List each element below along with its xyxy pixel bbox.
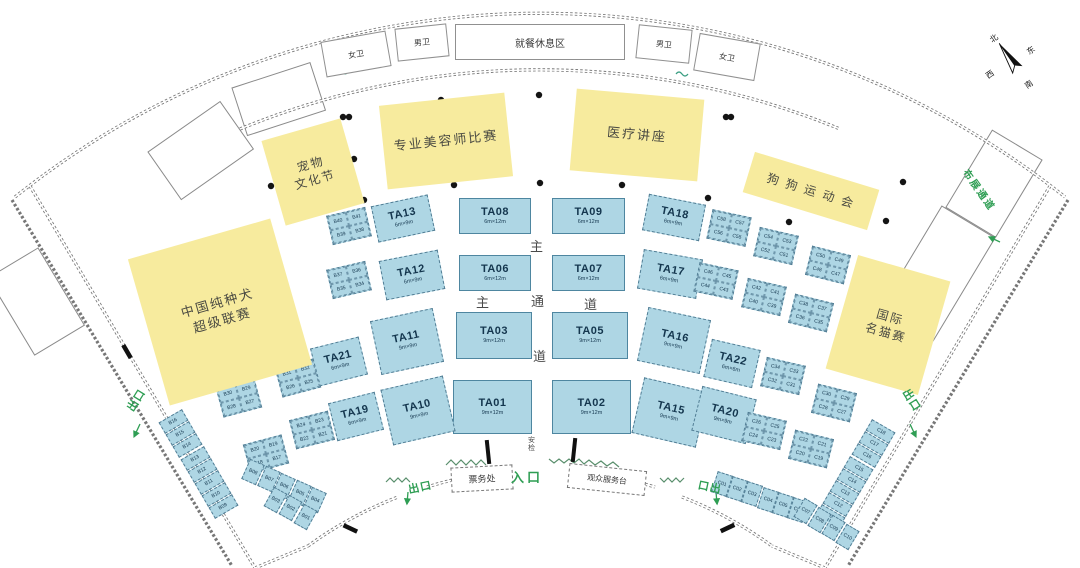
- exit-label: 出口: [123, 386, 149, 415]
- booth-size-label: 6m×12m: [484, 277, 506, 283]
- booth-size-label: 6m×9m: [395, 220, 414, 229]
- booth-cell-label: B01: [300, 512, 311, 522]
- booth-cell-label: C12: [832, 500, 843, 510]
- booth-cluster: C42C41C40C39: [741, 278, 787, 316]
- booth-cluster: C22C21C20C19: [788, 430, 834, 469]
- booth-cell-C43: C43: [713, 281, 734, 299]
- booth-cell-label: B16: [168, 417, 179, 427]
- booth-TA08: TA086m×12m: [459, 198, 531, 234]
- booth-size-label: 6m×12m: [578, 277, 600, 283]
- booth-cell-label: C05: [778, 501, 789, 510]
- main-corridor-label: 通: [531, 291, 544, 310]
- booth-cell-label: B14: [183, 441, 194, 451]
- dining-area-label: 就餐休息区: [515, 35, 565, 50]
- booth-TA07: TA076m×12m: [552, 255, 625, 291]
- booth-cell-label: B08: [248, 467, 259, 476]
- booth-cell-C31: C31: [780, 376, 802, 394]
- booth-TA13: TA136m×9m: [371, 194, 435, 242]
- booth-cell-label: C16: [861, 451, 872, 461]
- booth-cell-label: B03: [270, 495, 281, 505]
- event-zone-label: 狗 狗 运 动 会: [765, 170, 857, 212]
- booth-cluster: C30C29C28C27: [811, 384, 857, 423]
- booth-TA02: TA029m×12m: [552, 380, 631, 434]
- ticket-office-label: 票务处: [468, 471, 496, 485]
- restroom-men-right: 男卫: [635, 24, 692, 63]
- booth-size-label: 9m×12m: [579, 339, 601, 345]
- booth-cluster: C46C45C44C43: [693, 262, 738, 300]
- booth-cluster: B40B41B39B38: [326, 207, 372, 245]
- booth-cell-B38: B38: [349, 222, 371, 240]
- restroom-women-left-label: 女卫: [347, 47, 365, 61]
- compass-west-label: 西: [984, 68, 997, 82]
- restroom-women-right-label: 女卫: [718, 50, 736, 64]
- booth-size-label: 9m×12m: [581, 411, 603, 417]
- visitor-service-desk: 观众服务台: [567, 463, 647, 496]
- setup-passage-label: 布展通道: [960, 166, 1000, 214]
- event-zone-medical-lecture: 医疗讲座: [570, 89, 705, 182]
- main-corridor-label: 道: [584, 294, 597, 313]
- booth-cell-label: C13: [839, 488, 850, 498]
- booth-id-label: TA02: [577, 398, 605, 409]
- restroom-men-left-label: 男卫: [413, 36, 430, 49]
- booth-TA12: TA126m×9m: [379, 250, 446, 301]
- entrance-label: 入口: [511, 467, 543, 486]
- booth-cell-label: B04: [310, 495, 321, 504]
- booth-cell-C39: C39: [761, 297, 783, 315]
- booth-TA06: TA066m×12m: [459, 255, 531, 291]
- booth-size-label: 9m×9m: [663, 342, 682, 351]
- booth-cell-label: B13: [190, 453, 201, 463]
- booth-TA01: TA019m×12m: [453, 380, 532, 434]
- event-zone-groomer-competition: 专业美容师比赛: [379, 93, 513, 190]
- booth-cell-label: C02: [732, 485, 743, 494]
- main-corridor-label: 主: [530, 236, 543, 255]
- booth-cell-label: B11: [204, 478, 214, 487]
- booth-size-label: 6m×9m: [663, 219, 682, 228]
- booth-id-label: TA01: [478, 398, 506, 409]
- booth-layer: TA086m×12mTA096m×12mTA066m×12mTA076m×12m…: [0, 0, 1080, 568]
- booth-size-label: 9m×9m: [399, 343, 418, 352]
- compass-south-label: 南: [1023, 78, 1036, 92]
- booth-size-label: 6m×12m: [578, 220, 600, 226]
- booth-cell-label: B15: [175, 429, 186, 439]
- event-zone-dog-sports-meet: 狗 狗 运 动 会: [743, 152, 880, 230]
- booth-cell-label: C04: [762, 495, 773, 504]
- booth-TA19: TA196m×9m: [328, 392, 384, 441]
- booth-TA22: TA226m×6m: [703, 339, 760, 388]
- booth-cluster: C58C57C56C55: [706, 209, 751, 247]
- main-corridor-label: 道: [533, 346, 546, 365]
- booth-id-label: TA06: [481, 264, 509, 275]
- booth-cluster: C38C37C36C35: [788, 294, 834, 333]
- booth-size-label: 6m×12m: [484, 220, 506, 226]
- booth-TA05: TA059m×12m: [552, 312, 628, 359]
- booth-id-label: TA03: [480, 326, 508, 337]
- booth-cell-label: B07: [263, 474, 274, 483]
- booth-cell-label: C07: [800, 506, 811, 516]
- booth-cell-label: B10: [211, 490, 222, 500]
- booth-id-label: TA09: [574, 207, 602, 218]
- main-corridor-label: 主: [476, 292, 489, 311]
- booth-TA09: TA096m×12m: [552, 198, 625, 234]
- booth-size-label: 6m×9m: [404, 277, 423, 286]
- booth-cluster: B24B23B22B21: [289, 411, 335, 450]
- booth-cell-label: C17: [868, 439, 879, 449]
- booth-cell-C23: C23: [761, 431, 783, 449]
- booth-id-label: TA07: [574, 264, 602, 275]
- booth-cell-B34: B34: [349, 276, 371, 294]
- ticket-office: 票务处: [450, 464, 513, 492]
- booth-cell-label: B05: [295, 488, 306, 497]
- booth-TA03: TA039m×12m: [456, 312, 532, 359]
- booth-TA18: TA186m×9m: [642, 194, 706, 241]
- booth-cell-C51: C51: [773, 246, 795, 264]
- booth-cell-B21: B21: [312, 425, 334, 443]
- exit-label: 出口: [407, 477, 434, 498]
- booth-TA11: TA119m×9m: [370, 308, 444, 375]
- restroom-women-right: 女卫: [693, 33, 761, 81]
- booth-cell-label: C08: [814, 515, 825, 525]
- booth-cell-label: C14: [846, 475, 857, 485]
- booth-TA10: TA109m×9m: [380, 376, 455, 446]
- booth-cluster: C54C53C52C51: [753, 227, 799, 265]
- restroom-men-left: 男卫: [394, 23, 449, 61]
- booth-TA16: TA169m×9m: [637, 307, 711, 374]
- booth-cluster: C50C49C48C47: [805, 246, 851, 285]
- booth-cell-label: C18: [875, 427, 886, 437]
- compass-east-label: 东: [1025, 44, 1038, 58]
- booth-id-label: TA05: [576, 326, 604, 337]
- booth-cell-C55: C55: [726, 228, 747, 246]
- security-check-label: 安检: [528, 437, 537, 452]
- booth-size-label: 9m×12m: [483, 339, 505, 345]
- booth-cluster: C26C25C24C23: [741, 412, 787, 450]
- restroom-women-left: 女卫: [320, 31, 391, 78]
- booth-cell-label: C15: [853, 463, 864, 473]
- booth-cell-label: B09: [219, 502, 230, 512]
- booth-cell-label: C03: [747, 490, 758, 499]
- booth-cell-label: C09: [828, 523, 839, 533]
- booth-size-label: 9m×12m: [482, 411, 504, 417]
- exhibition-floor-plan: TA086m×12mTA096m×12mTA066m×12mTA076m×12m…: [0, 0, 1080, 568]
- booth-size-label: 9m×9m: [410, 412, 429, 422]
- booth-cell-label: B06: [279, 481, 290, 490]
- event-zone-label: 专业美容师比赛: [393, 127, 499, 155]
- booth-cell-label: B02: [285, 504, 296, 514]
- booth-cell-label: C10: [842, 532, 853, 542]
- compass-north-label: 北: [988, 32, 1001, 46]
- dining-area: 就餐休息区: [455, 24, 625, 60]
- booth-cluster: C34C33C32C31: [760, 357, 806, 395]
- event-zone-label: 医疗讲座: [606, 124, 667, 147]
- visitor-service-desk-label: 观众服务台: [587, 472, 628, 487]
- booth-size-label: 6m×9m: [659, 276, 678, 285]
- booth-cluster: B37B36B35B34: [326, 261, 372, 299]
- booth-id-label: TA08: [481, 207, 509, 218]
- restroom-men-right-label: 男卫: [655, 38, 672, 51]
- booth-cell-label: B12: [197, 465, 208, 475]
